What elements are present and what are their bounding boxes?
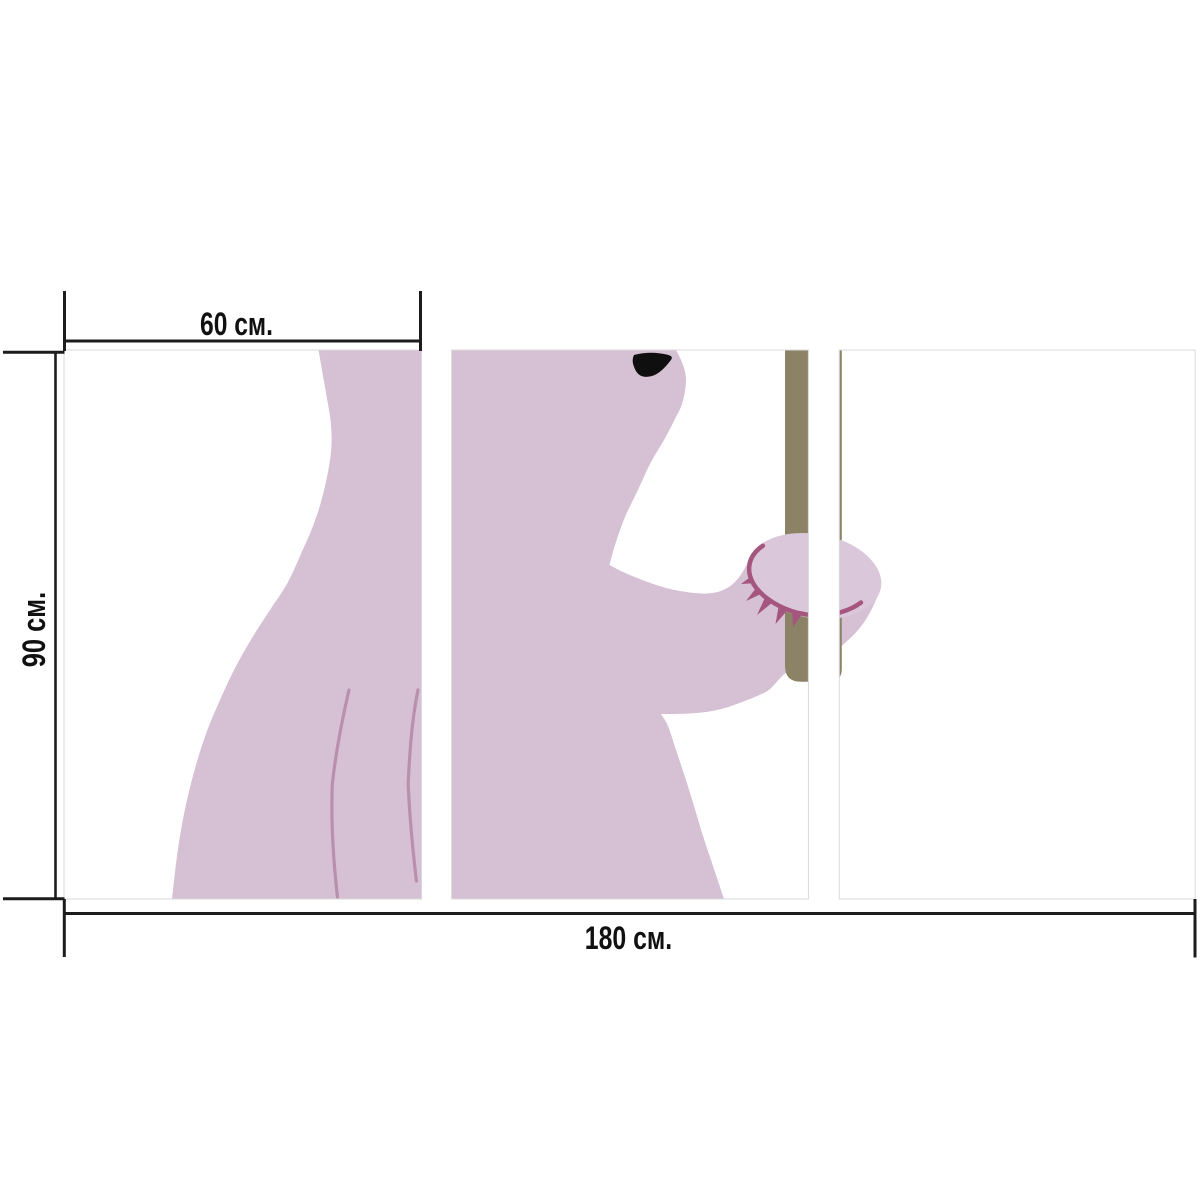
svg-text:180 см.: 180 см. [585,920,672,956]
svg-text:90 см.: 90 см. [16,592,52,668]
svg-text:60 см.: 60 см. [200,306,273,342]
